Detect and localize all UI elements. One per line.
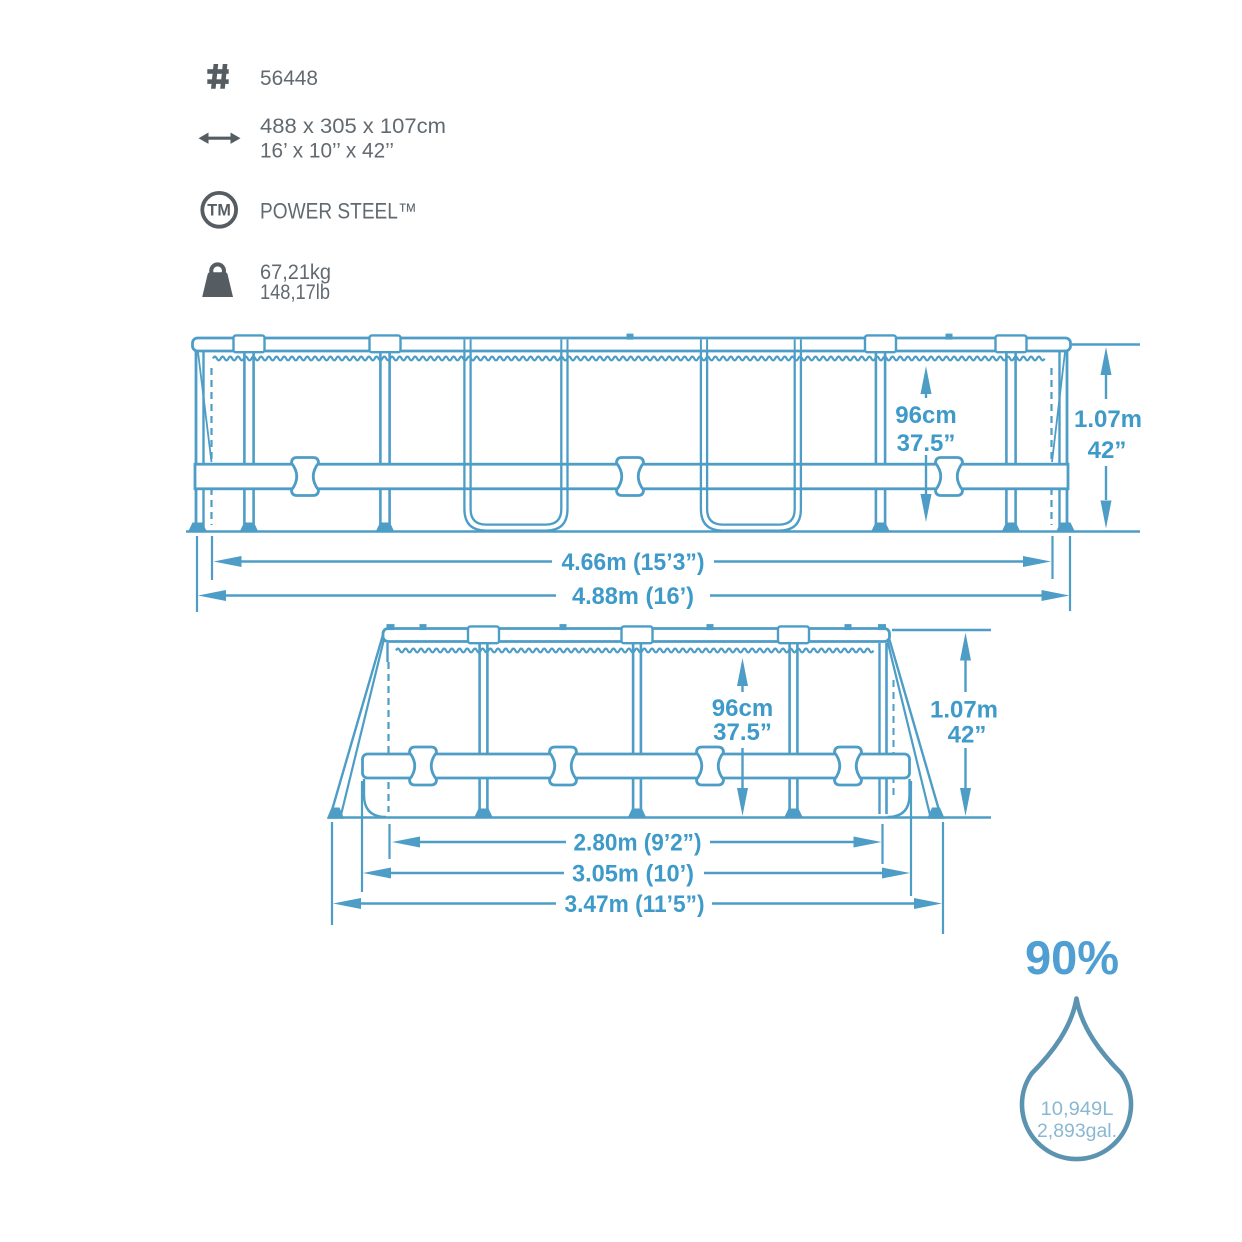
svg-text:56448: 56448: [260, 67, 318, 90]
svg-text:488 x 305 x 107cm: 488 x 305 x 107cm: [260, 115, 446, 138]
svg-text:TM: TM: [207, 201, 231, 219]
svg-text:148,17lb: 148,17lb: [260, 281, 330, 304]
svg-text:10,949L: 10,949L: [1041, 1099, 1114, 1120]
svg-text:3.05m (10’): 3.05m (10’): [572, 861, 694, 888]
svg-text:4.66m (15’3”): 4.66m (15’3”): [562, 549, 705, 576]
svg-text:3.47m (11’5”): 3.47m (11’5”): [565, 891, 705, 918]
svg-text:96cm: 96cm: [895, 402, 956, 429]
svg-text:1.07m: 1.07m: [1074, 406, 1142, 433]
svg-text:37.5”: 37.5”: [897, 430, 956, 457]
svg-text:42”: 42”: [1088, 437, 1127, 464]
svg-text:42”: 42”: [948, 722, 987, 749]
svg-text:POWER STEEL™: POWER STEEL™: [260, 199, 417, 224]
svg-text:37.5”: 37.5”: [713, 719, 772, 746]
svg-text:90%: 90%: [1025, 931, 1119, 984]
svg-text:2.80m (9’2”): 2.80m (9’2”): [574, 830, 702, 857]
svg-text:2,893gal.: 2,893gal.: [1037, 1121, 1117, 1142]
svg-text:1.07m: 1.07m: [930, 697, 998, 724]
svg-text:16’ x 10’’ x 42’’: 16’ x 10’’ x 42’’: [260, 140, 394, 163]
svg-text:96cm: 96cm: [712, 695, 773, 722]
svg-text:4.88m (16’): 4.88m (16’): [572, 583, 694, 610]
